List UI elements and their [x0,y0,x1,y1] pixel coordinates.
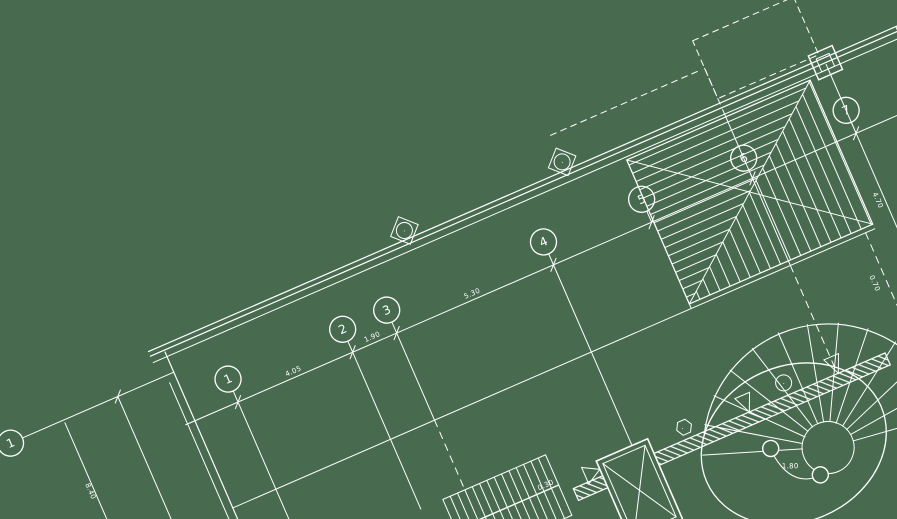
newel-post-1 [760,438,781,459]
dim-bay-1-2: 4.05 [284,364,303,378]
blueprint-floor-plan: · · 1 2 3 4 5 6 [0,0,897,519]
grid-bubble-3: 3 [380,302,393,318]
grid-bubble-row-1: 1 [4,435,17,451]
dim-right-lower: 0.70 [867,274,881,293]
diamond-marker-2-label: · [560,159,565,167]
diamond-marker-1-label: · [402,227,407,235]
hex-tag-1 [674,418,694,437]
dim-bay-3-4: 5.30 [463,287,482,301]
newel-post-2 [810,464,831,485]
hatched-area [627,80,873,304]
grid-bubble-1: 1 [222,371,235,387]
dim-stair-radius: 1.80 [782,462,799,470]
grid-bubble-7: 7 [840,102,853,118]
diamond-marker-2: · [542,142,581,181]
straight-stair: 0.30 [443,455,572,519]
floor-plan-canvas: · · 1 2 3 4 5 6 [0,0,897,519]
hex-tag-1-label: · [680,425,685,433]
diamond-marker-1: · [385,211,424,250]
dim-bay-2-3: 1.90 [363,330,382,344]
grid-bubble-2: 2 [336,321,349,337]
dim-left-total: 8.40 [83,482,97,501]
grid-bubble-4: 4 [537,234,550,250]
